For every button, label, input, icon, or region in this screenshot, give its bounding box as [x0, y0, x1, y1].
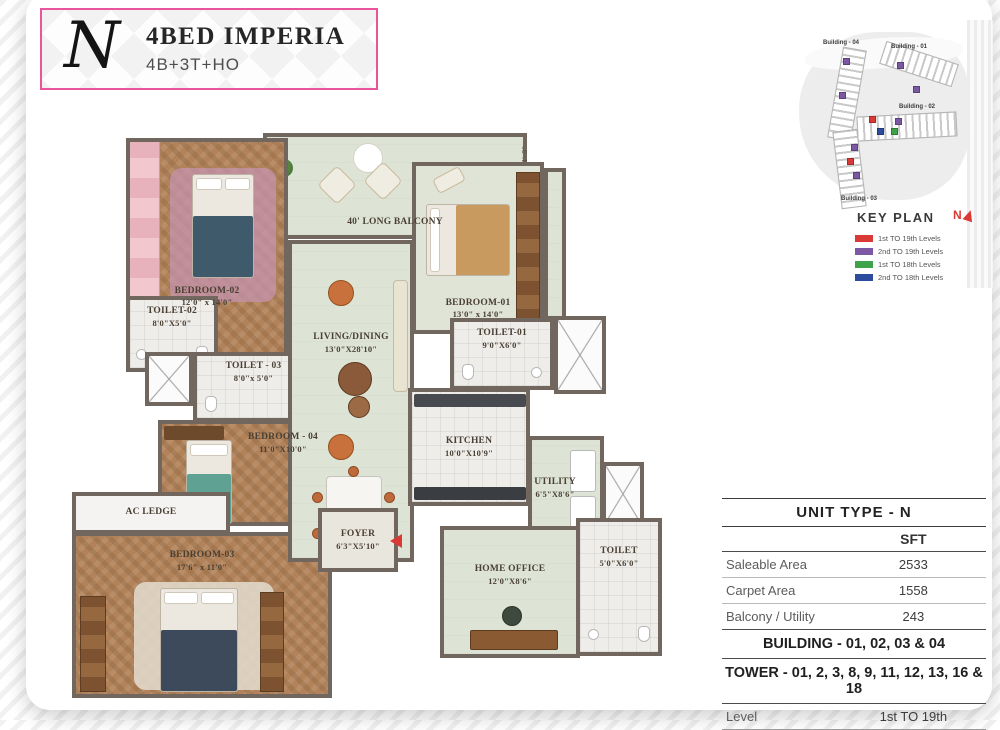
legend-label: 2nd TO 19th Levels	[878, 247, 943, 256]
armchair	[328, 280, 354, 306]
compass-needle-icon	[962, 208, 975, 222]
dining-chair	[312, 492, 323, 503]
dimension-label-right: 4'-3"	[520, 146, 529, 163]
bed	[160, 588, 238, 692]
room-toilet-01: TOILET-01 9'0"X6'0"	[450, 318, 554, 390]
title-block: N 4BED IMPERIA 4B+3T+HO	[40, 8, 378, 90]
unit-marker	[851, 144, 858, 151]
key-plan: Building - 04 Building - 01 Building - 0…	[795, 20, 991, 280]
row-value: 1st TO 19th	[841, 709, 986, 724]
unit-marker	[895, 118, 902, 125]
armchair	[328, 434, 354, 460]
room-ac-ledge: AC LEDGE	[72, 492, 230, 534]
basin-fixture	[531, 367, 542, 378]
room-label-ac-ledge: AC LEDGE	[126, 507, 177, 519]
keyplan-heading: KEY PLAN	[857, 210, 935, 225]
wardrobe	[80, 596, 106, 692]
bed	[192, 174, 254, 278]
brand-logo-n: N	[64, 14, 120, 78]
office-desk	[470, 630, 558, 650]
row-label: Level	[722, 709, 841, 724]
unit-marker	[843, 58, 850, 65]
unit-marker	[839, 92, 846, 99]
kitchen-counter	[414, 487, 526, 500]
sofa	[393, 280, 408, 392]
toilet-fixture	[638, 626, 650, 642]
legend-label: 1st TO 19th Levels	[878, 234, 941, 243]
lift-shaft	[554, 316, 606, 394]
room-label-bedroom-04: BEDROOM - 04 11'0"X10'0"	[248, 432, 318, 455]
entry-arrow-icon	[390, 534, 402, 548]
coffee-table	[338, 362, 372, 396]
row-label: Carpet Area	[722, 583, 841, 598]
table-building-line: BUILDING - 01, 02, 03 & 04	[722, 630, 986, 659]
row-value: 2533	[841, 557, 986, 572]
room-toilet-home-office: TOILET 5'0"X6'0"	[576, 518, 662, 656]
wardrobe	[260, 592, 284, 692]
unit-marker	[853, 172, 860, 179]
room-kitchen: KITCHEN 10'0"X10'9"	[408, 388, 530, 506]
room-side-balcony	[544, 168, 566, 320]
dining-chair	[348, 466, 359, 477]
legend-label: 2nd TO 18th Levels	[878, 273, 943, 282]
toilet-fixture	[205, 396, 217, 412]
room-label-bedroom-02: BEDROOM-02 12'0" x 14'0"	[175, 286, 240, 309]
room-label-foyer: FOYER 6'3"X5'10"	[336, 529, 380, 552]
keyplan-label-building-01: Building - 01	[891, 44, 927, 50]
legend-row: 2nd TO 19th Levels	[855, 247, 943, 256]
coffee-table	[348, 396, 370, 418]
unit-marker	[891, 128, 898, 135]
compass-n-label: N	[953, 208, 962, 222]
keyplan-label-building-04: Building - 04	[823, 40, 859, 46]
floor-plan: 40' LONG BALCONY 7'-3" 4'-3" BEDROOM-02 …	[60, 110, 725, 710]
toilet-fixture	[462, 364, 474, 380]
legend-row: 1st TO 19th Levels	[855, 234, 943, 243]
row-label: Balcony / Utility	[722, 609, 841, 624]
accent-chair	[432, 166, 466, 194]
table-row-saleable-area: Saleable Area 2533	[722, 552, 986, 578]
room-label-toilet-home-office: TOILET 5'0"X6'0"	[599, 546, 638, 569]
room-label-living-dining: LIVING/DINING 13'0"X28'10"	[313, 332, 388, 355]
unit-marker	[877, 128, 884, 135]
lift-shaft	[145, 352, 193, 406]
table-header-sft: SFT	[841, 531, 986, 547]
legend-label: 1st TO 18th Levels	[878, 260, 941, 269]
table-header-row: SFT	[722, 527, 986, 552]
keyplan-legend: 1st TO 19th Levels 2nd TO 19th Levels 1s…	[855, 234, 943, 282]
unit-marker	[897, 62, 904, 69]
table-row-balcony-utility: Balcony / Utility 243	[722, 604, 986, 630]
legend-row: 2nd TO 18th Levels	[855, 273, 943, 282]
legend-row: 1st TO 18th Levels	[855, 260, 943, 269]
unit-details-table: UNIT TYPE - N SFT Saleable Area 2533 Car…	[722, 498, 986, 730]
basin-fixture	[588, 629, 599, 640]
kitchen-counter	[414, 394, 526, 407]
keyplan-label-building-03: Building - 03	[841, 196, 877, 202]
lift-shaft	[602, 462, 644, 526]
wardrobe	[130, 142, 160, 298]
room-label-toilet-02: TOILET-02 8'0"X5'0"	[147, 306, 197, 329]
table-title: UNIT TYPE - N	[722, 498, 986, 527]
bed	[426, 204, 510, 276]
unit-marker	[847, 158, 854, 165]
dining-chair	[384, 492, 395, 503]
room-foyer: FOYER 6'3"X5'10"	[318, 508, 398, 572]
keyplan-label-building-02: Building - 02	[899, 104, 935, 110]
room-label-bedroom-01: BEDROOM-01 13'0" x 14'0"	[446, 298, 511, 321]
room-label-toilet-03: TOILET - 03 8'0"x 5'0"	[226, 361, 282, 384]
study-desk	[164, 426, 224, 440]
room-label-toilet-01: TOILET-01 9'0"X6'0"	[477, 328, 527, 351]
room-label-balcony: 40' LONG BALCONY	[347, 217, 443, 229]
lounge-chair	[317, 165, 357, 205]
legend-swatch-blue	[855, 274, 873, 281]
page-subtitle: 4B+3T+HO	[146, 55, 345, 75]
row-value: 243	[841, 609, 986, 624]
table-row-level: Level 1st TO 19th	[722, 704, 986, 730]
room-label-utility: UTILITY 6'5"X8'6"	[534, 477, 576, 500]
table-tower-line: TOWER - 01, 2, 3, 8, 9, 11, 12, 13, 16 &…	[722, 659, 986, 704]
room-label-kitchen: KITCHEN 10'0"X10'9"	[445, 436, 493, 459]
room-label-home-office: HOME OFFICE 12'0"X8'6"	[475, 564, 546, 587]
table-row-carpet-area: Carpet Area 1558	[722, 578, 986, 604]
legend-swatch-purple	[855, 248, 873, 255]
page-title: 4BED IMPERIA	[146, 23, 345, 51]
office-chair	[502, 606, 522, 626]
keyplan-fold-shadow	[967, 20, 993, 288]
room-label-bedroom-03: BEDROOM-03 17'6" x 11'0"	[170, 550, 235, 573]
legend-swatch-green	[855, 261, 873, 268]
legend-swatch-red	[855, 235, 873, 242]
north-compass-icon: N	[953, 208, 974, 222]
room-home-office: HOME OFFICE 12'0"X8'6"	[440, 526, 580, 658]
wardrobe	[516, 172, 540, 324]
unit-marker	[869, 116, 876, 123]
row-value: 1558	[841, 583, 986, 598]
row-label: Saleable Area	[722, 557, 841, 572]
unit-marker	[913, 86, 920, 93]
